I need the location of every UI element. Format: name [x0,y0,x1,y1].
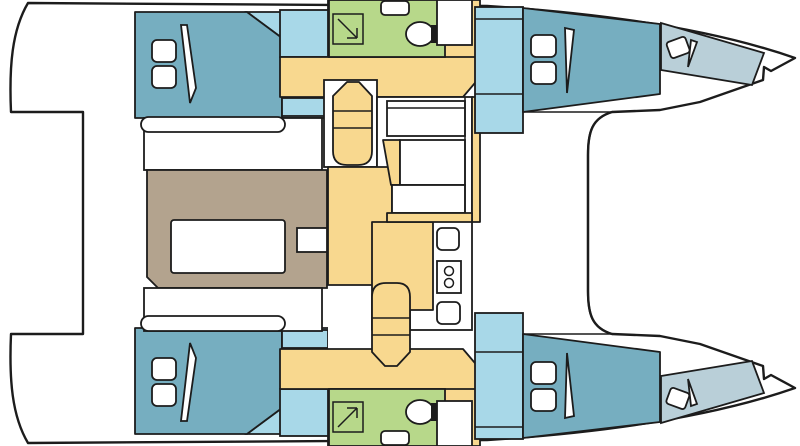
galley-unit-middle [400,140,465,185]
galley-shelf-strip [387,213,472,222]
starboard-bath-sink [381,431,409,445]
starboard-toilet-bowl [406,400,434,424]
galley-unit-lower [392,185,465,213]
starboard-companionway [280,389,328,436]
foredeck-boundary [588,112,612,334]
starboard-bath-cabinet [437,401,472,446]
chart-seat-bottom [372,283,410,366]
port-bath-sink [381,1,409,15]
corridor-top [280,57,480,97]
starboard-aft-bed [135,328,282,434]
starboard-forward-pillow-2 [531,362,556,384]
port-bath-cabinet [437,0,472,45]
port-aft-pillow-2 [152,66,176,88]
port-forward-cabin [523,8,764,112]
deck-plan-svg [0,0,800,446]
starboard-forward-bed [523,334,660,438]
dinette-side-seat [297,228,327,252]
port-aft-wardrobe [282,98,328,116]
starboard-aft-wardrobe [282,330,328,348]
dinette-table [171,220,285,273]
starboard-forward-cabin [523,334,764,438]
port-forward-bed [523,8,660,112]
starboard-aft-pillow-1 [152,384,176,406]
dinette-seatback-bottom [141,316,285,331]
dinette [141,117,327,331]
catamaran-deck-plan [0,0,800,446]
fridge-unit [387,101,465,136]
starboard-steps-column [475,313,523,439]
port-aft-pillow-1 [152,40,176,62]
port-aft-bed [135,12,282,118]
galley-unit-small [437,302,460,324]
port-toilet-bowl [406,22,434,46]
starboard-forward-pillow-1 [531,389,556,411]
port-companionway [280,10,328,57]
galley-sink [437,228,459,250]
port-steps-column [475,7,523,133]
port-forward-pillow-2 [531,62,556,84]
port-forward-pillow-1 [531,35,556,57]
starboard-aft-pillow-2 [152,358,176,380]
dinette-seatback-top [141,117,285,132]
chart-seat-top [333,82,372,165]
